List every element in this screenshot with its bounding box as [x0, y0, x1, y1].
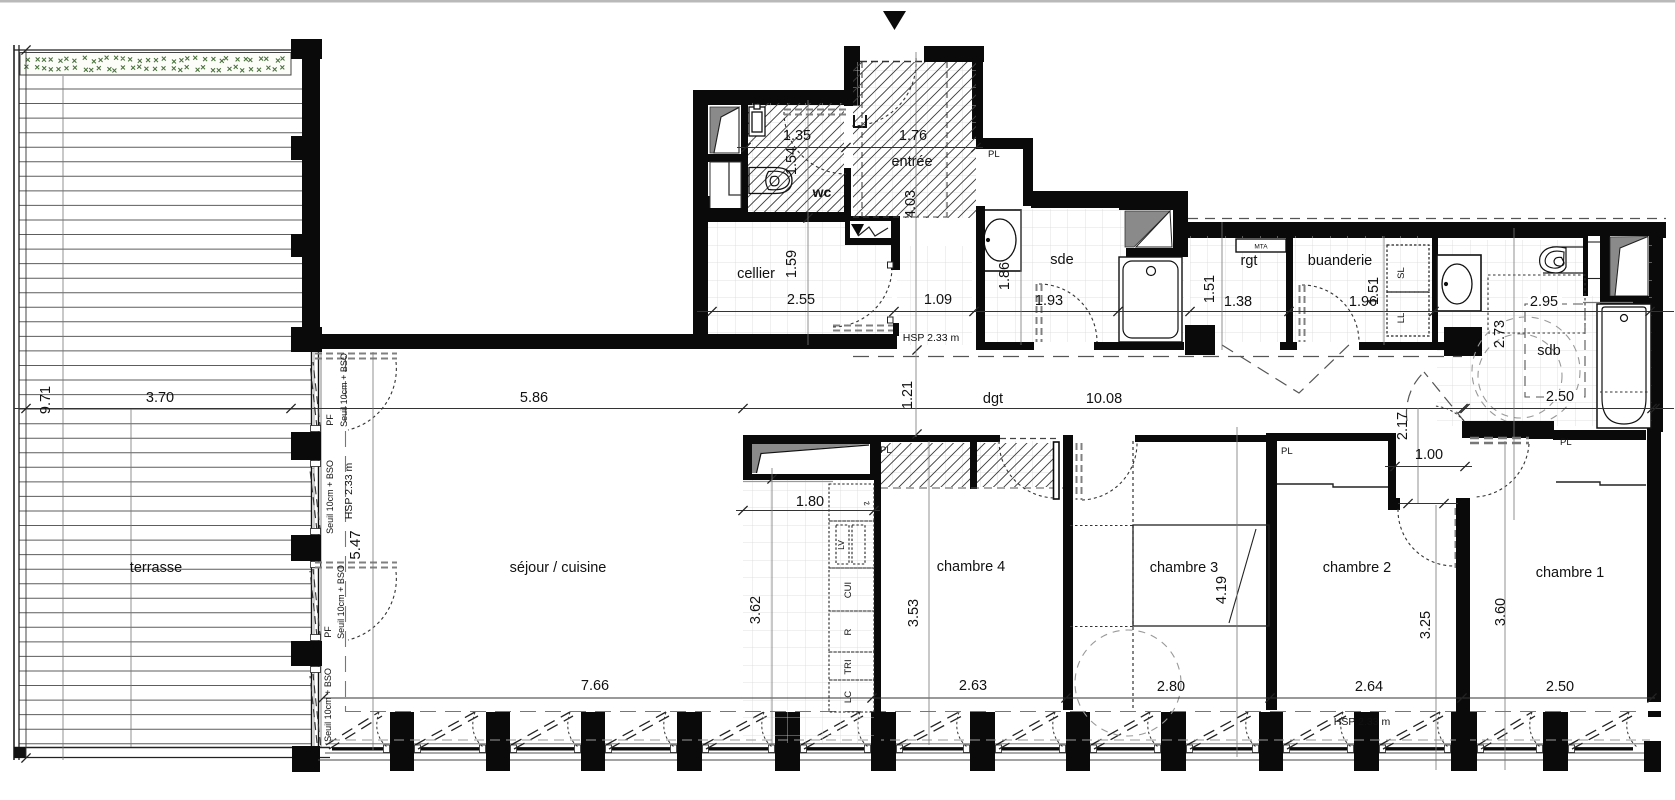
- svg-text:2.50: 2.50: [1546, 679, 1574, 695]
- svg-text:PL: PL: [1281, 446, 1293, 457]
- svg-text:LV: LV: [836, 540, 846, 550]
- svg-text:chambre 2: chambre 2: [1323, 560, 1392, 576]
- svg-text:4.03: 4.03: [903, 190, 919, 218]
- svg-text:7.66: 7.66: [581, 678, 609, 694]
- svg-text:2.80: 2.80: [1157, 679, 1185, 695]
- svg-text:séjour / cuisine: séjour / cuisine: [510, 560, 607, 576]
- svg-text:dgt: dgt: [983, 391, 1003, 407]
- svg-text:1.35: 1.35: [783, 128, 811, 144]
- svg-text:5.86: 5.86: [520, 390, 548, 406]
- svg-text:1.51: 1.51: [1202, 275, 1218, 303]
- svg-text:1.80: 1.80: [796, 494, 824, 510]
- svg-text:CUI: CUI: [843, 582, 854, 598]
- svg-text:2.63: 2.63: [959, 678, 987, 694]
- svg-text:HSP 2.33 m: HSP 2.33 m: [1334, 716, 1391, 728]
- svg-text:sde: sde: [1050, 252, 1073, 268]
- svg-text:2.95: 2.95: [1530, 294, 1558, 310]
- svg-text:3.70: 3.70: [146, 390, 174, 406]
- svg-text:1.54: 1.54: [784, 147, 800, 175]
- svg-text:LL: LL: [1396, 313, 1407, 324]
- svg-text:2.55: 2.55: [787, 292, 815, 308]
- svg-text:LC: LC: [843, 691, 854, 703]
- svg-text:1.93: 1.93: [1035, 293, 1063, 309]
- svg-text:9.71: 9.71: [38, 386, 54, 414]
- svg-text:PF: PF: [323, 626, 333, 638]
- svg-text:R: R: [843, 628, 854, 635]
- svg-text:PL: PL: [1560, 437, 1572, 448]
- svg-text:Seuil 10cm + BSO: Seuil 10cm + BSO: [323, 668, 333, 742]
- svg-text:Seuil 10cm + BSO: Seuil 10cm + BSO: [339, 353, 349, 427]
- svg-text:3.60: 3.60: [1493, 598, 1509, 626]
- svg-text:1.51: 1.51: [1366, 277, 1382, 305]
- svg-text:terrasse: terrasse: [130, 560, 182, 576]
- svg-text:1.59: 1.59: [784, 250, 800, 278]
- svg-text:chambre 3: chambre 3: [1150, 560, 1219, 576]
- svg-text:4.19: 4.19: [1214, 576, 1230, 604]
- svg-text:1.00: 1.00: [1415, 447, 1443, 463]
- svg-text:PL: PL: [880, 445, 892, 456]
- svg-text:2.73: 2.73: [1492, 320, 1508, 348]
- svg-text:TRI: TRI: [843, 659, 854, 674]
- svg-text:Seuil 10cm + BSO: Seuil 10cm + BSO: [336, 565, 346, 639]
- svg-text:sdb: sdb: [1537, 343, 1560, 359]
- svg-text:buanderie: buanderie: [1308, 253, 1373, 269]
- svg-text:entrée: entrée: [891, 154, 932, 170]
- svg-text:1.76: 1.76: [899, 128, 927, 144]
- svg-text:chambre 4: chambre 4: [937, 559, 1006, 575]
- svg-text:3.25: 3.25: [1418, 611, 1434, 639]
- svg-text:cellier: cellier: [737, 266, 775, 282]
- svg-text:SL: SL: [1396, 267, 1407, 279]
- svg-text:MTA: MTA: [1254, 244, 1268, 251]
- svg-text:2.50: 2.50: [1546, 389, 1574, 405]
- svg-text:5.47: 5.47: [347, 530, 364, 559]
- svg-text:1.21: 1.21: [900, 381, 916, 409]
- svg-text:HSP 2.33 m: HSP 2.33 m: [903, 332, 960, 344]
- svg-text:3.53: 3.53: [906, 599, 922, 627]
- svg-text:PL: PL: [988, 149, 1000, 160]
- svg-text:1.38: 1.38: [1224, 294, 1252, 310]
- svg-text:2.17: 2.17: [1395, 412, 1411, 440]
- svg-text:1.86: 1.86: [997, 262, 1013, 290]
- svg-text:wc: wc: [812, 184, 832, 200]
- svg-text:2.64: 2.64: [1355, 679, 1383, 695]
- svg-text:HSP 2.33 m: HSP 2.33 m: [343, 463, 355, 520]
- svg-text:10.08: 10.08: [1086, 391, 1122, 407]
- svg-text:Seuil 10cm + BSO: Seuil 10cm + BSO: [325, 460, 335, 534]
- svg-text:3.62: 3.62: [748, 596, 764, 624]
- svg-text:chambre 1: chambre 1: [1536, 565, 1605, 581]
- svg-text:1.09: 1.09: [924, 292, 952, 308]
- svg-text:rgt: rgt: [1241, 253, 1258, 269]
- svg-text:PF: PF: [325, 414, 335, 426]
